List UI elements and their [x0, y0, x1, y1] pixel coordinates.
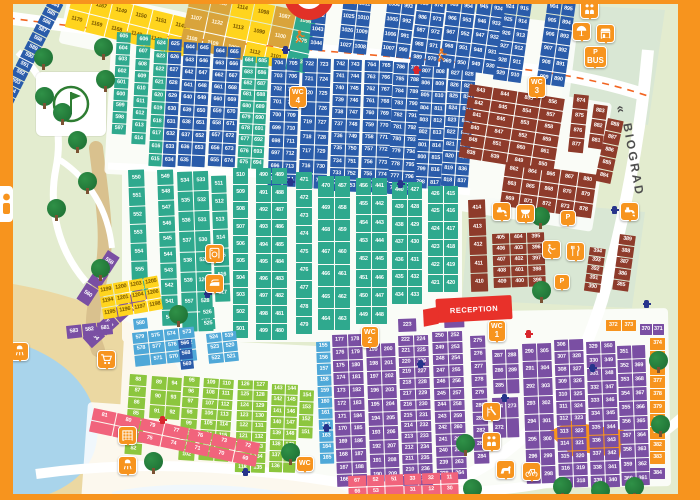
pitch-cell: 292 [523, 379, 538, 396]
pitch-cell: 444 [372, 233, 387, 250]
pitch-cell: 803 [417, 115, 431, 127]
pitch-cell: 665 [227, 47, 241, 59]
pitch-cell: 298 [541, 466, 556, 483]
pitch-cell: 138 [270, 440, 283, 451]
pitch-cell: 276 [470, 348, 485, 360]
pitch-cell: 620 [152, 90, 166, 103]
zone-orange-372: 372373 [606, 320, 636, 331]
pitch-cell: 403 [510, 244, 527, 255]
pitch-cell: 631 [164, 116, 178, 129]
dog-marker [496, 460, 515, 479]
pitch-cell: 784 [392, 86, 406, 98]
pitch-cell: 307 [554, 352, 568, 364]
pitch-cell: 351 [617, 346, 631, 360]
pitch-cell: 728 [314, 131, 328, 145]
pitch-cell: 815 [429, 153, 443, 165]
pitch-cell: 805 [418, 91, 432, 103]
pitch-cell: 742 [334, 59, 348, 71]
pitch-cell: 605 [116, 32, 131, 43]
pitch-cell: 227 [415, 367, 430, 377]
p-marker: P [560, 210, 576, 226]
pitch-cell: 66 [348, 487, 366, 498]
pitch-cell: 1009 [354, 26, 369, 41]
pitch-cell: 719 [300, 116, 314, 130]
pitch-cell: 311 [556, 402, 570, 414]
pitch-cell: 432 [408, 270, 423, 287]
pitch-cell: 699 [269, 122, 283, 134]
pitch-cell: 260 [451, 423, 466, 434]
pitch-cell: 1011 [357, 0, 372, 12]
pitch-cell: 286 [493, 365, 506, 379]
pitch-cell: 612 [133, 108, 148, 120]
pitch-cell: 972 [428, 26, 443, 40]
hydrant-icon [612, 206, 617, 214]
pitch-cell: 371 [653, 324, 665, 335]
pitch-cell: 479 [296, 317, 312, 334]
pitch-cell: 652 [193, 130, 207, 142]
pitch-cell: 1004 [386, 0, 401, 13]
zone-maroon-838: 8438448558568428458548578418468538588408… [458, 84, 564, 172]
pitch-cell: 870 [557, 185, 576, 201]
pitch-cell: 692 [252, 136, 265, 147]
pitch-cell: 661 [212, 82, 226, 94]
runner-icon [434, 48, 449, 63]
pitch-cell: 88 [129, 374, 147, 386]
pitch-cell: 1100 [268, 26, 292, 49]
pitch-cell: 765 [379, 61, 393, 73]
pitch-cell: 295 [525, 432, 540, 449]
pitch-cell: 319 [573, 463, 587, 475]
pitch-cell [385, 486, 403, 497]
pitch-cell: 129 [252, 401, 267, 411]
pitch-cell: 553 [130, 225, 147, 243]
pitch-cell: 435 [392, 270, 407, 287]
minigolf-icon [49, 82, 93, 126]
pitch-cell: 152 [299, 414, 313, 426]
pitch-cell: 402 [510, 255, 527, 266]
pitch-cell: 229 [415, 389, 430, 399]
pitch-cell: 601 [114, 78, 129, 89]
pitch-cell: 823 [445, 115, 459, 127]
pitch-cell: 356 [619, 416, 633, 430]
pitch-cell: 156 [316, 353, 330, 364]
pitch-cell: 31 [404, 485, 422, 496]
pitch-cell: 655 [208, 155, 222, 167]
pitch-cell: 1098 [251, 1, 275, 24]
pitch-cell: 175 [333, 360, 348, 372]
pitch-cell: 201 [381, 357, 395, 370]
runner-marker [290, 28, 309, 47]
pitch-cell: 474 [296, 226, 312, 243]
pitch-cell: 461 [335, 265, 351, 286]
pitch-cell: 650 [194, 105, 208, 117]
pitch-cell: 649 [195, 93, 209, 105]
pitch-cell: 554 [131, 243, 148, 261]
pitch-cell: 194 [368, 413, 382, 426]
pitch-cell: 240 [436, 446, 451, 457]
pitch-cell: 546 [159, 217, 176, 232]
pitch-cell [506, 418, 519, 438]
pitch-cell: 643 [183, 54, 197, 66]
pitch-cell: 321 [572, 438, 586, 450]
pitch-cell: 198 [366, 357, 380, 370]
climb-marker [542, 240, 561, 259]
pitch-cell: 778 [388, 159, 402, 171]
pitch-cell: 542 [161, 279, 178, 294]
pitch-cell: 647 [196, 68, 210, 80]
pitch-cell: 160 [318, 397, 332, 408]
pitch-cell: 254 [448, 354, 463, 365]
pitch-cell: 336 [589, 435, 603, 448]
pitch-cell: 623 [154, 51, 168, 64]
pitch-cell: 759 [363, 120, 377, 132]
pitch-cell: 418 [444, 240, 459, 257]
pitch-cell: 417 [444, 222, 459, 239]
pitch-cell: 112 [217, 400, 232, 410]
pitch-cell: 710 [284, 123, 298, 135]
family-icon [583, 3, 596, 16]
pitch-cell: 883 [592, 104, 608, 120]
pitch-cell: 322 [572, 426, 586, 438]
pitch-cell: 573 [179, 327, 195, 339]
pitch-cell: 186 [351, 436, 366, 448]
zone-teal-415: 426415425416424417423418422419421420 [428, 186, 458, 292]
pitch-cell: 987 [413, 25, 428, 39]
pitch-cell: 379 [650, 401, 665, 413]
pitch-cell: 523 [207, 343, 222, 354]
pitch-cell: 328 [569, 351, 583, 363]
pitch-cell: 114 [216, 420, 231, 430]
pitch-cell: 508 [233, 202, 248, 218]
pitch-cell: 430 [408, 235, 423, 252]
pitch-cell: 799 [414, 164, 428, 176]
pitch-cell: 380 [650, 414, 665, 426]
pitch-cell: 925 [500, 13, 515, 27]
pitch-cell: 411 [470, 255, 488, 273]
pitch-cell: 228 [415, 378, 430, 388]
pitch-cell: 378 [650, 389, 665, 401]
pitch-cell [507, 379, 520, 393]
pitch-cell: 525 [201, 318, 216, 329]
pitch-cell: 745 [347, 84, 361, 96]
pitch-cell: 96 [183, 387, 200, 398]
pitch-cell: 179 [348, 347, 363, 359]
pitch-cell: 1026 [340, 24, 355, 39]
marker-label: P [560, 278, 565, 286]
hydrant-icon [160, 416, 165, 424]
kiosk-icon [121, 429, 134, 442]
pitch-cell: 520 [222, 341, 237, 352]
pitch-cell: 786 [393, 62, 407, 74]
pitch-cell: 636 [178, 142, 192, 154]
pitch-cell: 404 [510, 233, 527, 244]
pitch-cell: 989 [410, 51, 425, 65]
pitch-cell: 239 [436, 457, 451, 468]
pitch-cell: 385 [612, 279, 629, 292]
pitch-cell: 126 [238, 380, 253, 390]
cart-icon [100, 353, 113, 366]
pitch-cell: 727 [315, 117, 329, 131]
pitch-cell: 583 [66, 324, 82, 338]
pitch-cell: 93 [166, 391, 181, 405]
pitch-cell: 398 [528, 265, 545, 276]
family-icon [485, 435, 498, 448]
pitch-cell: 967 [443, 26, 458, 41]
wc-marker: WC1 [488, 320, 506, 342]
pitch-cell: 577 [149, 341, 165, 353]
pitch-cell: 914 [515, 15, 530, 29]
pitch-cell: 678 [239, 124, 252, 135]
runner-icon [292, 30, 307, 45]
pitch-cell: 302 [539, 396, 554, 413]
frame-badge [0, 186, 13, 222]
pitch-cell: 232 [417, 421, 432, 431]
pitch-cell: 658 [210, 118, 224, 130]
pitch-cell: 107 [202, 399, 217, 409]
pitch-cell: 630 [165, 103, 179, 116]
pitch-cell: 537 [179, 232, 195, 252]
pitch-cell: 718 [300, 131, 314, 145]
kiosk-marker [118, 426, 137, 445]
campground-map: RECEPTION « BIOGRAD 58458558658758858959… [0, 0, 700, 500]
pitch-cell: 314 [557, 439, 571, 451]
pitch-cell: 86 [128, 397, 146, 409]
forkknife-marker [566, 242, 585, 261]
pitch-cell: 505 [233, 254, 248, 270]
pitch-cell: 111 [218, 389, 233, 399]
pitch-cell: 812 [431, 116, 445, 128]
pitch-cell: 865 [520, 179, 539, 195]
pitch-cell: 386 [614, 268, 631, 281]
shower-icon [13, 345, 26, 358]
tap-marker [620, 202, 639, 221]
pitch-cell: 220 [399, 357, 414, 367]
pitch-cell: 231 [416, 410, 431, 420]
pitch-cell: 608 [135, 59, 150, 71]
pitch-cell: 176 [332, 347, 347, 359]
hydrant-icon [590, 364, 595, 372]
reception-building: RECEPTION [435, 295, 512, 323]
pitch-cell: 877 [568, 138, 584, 153]
pitch-cell: 681 [241, 90, 254, 101]
pitch-cell: 954 [461, 0, 476, 15]
zone-purple-166: 1771781761791751801741811731821721831711… [332, 334, 367, 487]
pitch-cell: 377 [650, 376, 665, 388]
pitch-cell: 406 [492, 244, 509, 255]
pitch-cell: 382 [650, 440, 665, 452]
pitch-cell: 142 [271, 395, 284, 406]
pitch-cell: 646 [197, 55, 211, 67]
pitch-cell: 730 [313, 160, 327, 174]
p-marker: P [554, 274, 570, 290]
pitch-cell: 950 [454, 56, 469, 71]
pitch-cell: 700 [270, 110, 284, 122]
pitch-cell: 498 [256, 306, 271, 322]
pitch-cell: 278 [471, 374, 486, 386]
pitch-cell: 725 [316, 88, 330, 102]
pitch-cell: 946 [474, 14, 489, 29]
pitch-cell: 413 [469, 218, 487, 236]
pitch-cell: 600 [113, 89, 128, 100]
pitch-cell: 680 [240, 101, 253, 112]
pitch-cell: 985 [416, 0, 431, 12]
pitch-cell: 539 [181, 272, 197, 292]
pitch-cell: 908 [538, 56, 553, 71]
pitch-cell: 541 [161, 295, 178, 310]
pitch-cell: 738 [332, 107, 346, 119]
pitch-cell: 183 [350, 398, 365, 410]
marker-sublabel: BUS [587, 57, 604, 65]
pitch-cell: 617 [150, 128, 164, 141]
pitch-cell: 332 [587, 382, 601, 395]
marker-sublabel: 4 [296, 97, 300, 105]
pitch-cell: 275 [470, 335, 485, 347]
pitch-cell: 180 [348, 359, 363, 371]
pitch-cell: 193 [369, 427, 383, 440]
pitch-cell: 757 [362, 145, 376, 157]
pitch-cell: 653 [192, 143, 206, 155]
pitch-cell: 177 [332, 334, 347, 346]
pitch-cell: 312 [557, 414, 571, 426]
pitch-cell: 904 [546, 0, 561, 15]
pitch-cell: 163 [319, 431, 333, 442]
pitch-cell: 285 [493, 380, 506, 394]
pitch-cell: 458 [335, 198, 351, 219]
pitch-cell: 334 [588, 408, 602, 421]
pitch-cell: 549 [157, 169, 174, 184]
pitch-cell: 185 [351, 423, 366, 435]
pitch-cell: 947 [472, 29, 487, 44]
pitch-cell: 168 [336, 449, 351, 461]
pitch-cell: 800 [415, 152, 429, 164]
zone-pink-cluster: 6752513332116653311230 [348, 472, 459, 498]
pitch-cell: 802 [416, 127, 430, 139]
tap-icon [495, 205, 508, 218]
pitch-cell: 519 [221, 331, 236, 342]
zone-teal-427: 4404274394284384294374304364314354324344… [392, 182, 422, 304]
camper-icon [1, 190, 12, 218]
pitch-cell: 811 [431, 104, 445, 116]
cart-marker [97, 350, 116, 369]
pitch-cell: 308 [555, 364, 569, 376]
pitch-cell: 820 [442, 151, 456, 163]
pitch-cell: 128 [253, 391, 268, 401]
pitch-cell: 483 [272, 272, 287, 288]
pitch-cell: 667 [226, 71, 240, 83]
pitch-cell: 893 [557, 30, 572, 45]
pitch-cell: 223 [398, 318, 416, 332]
pitch-cell [134, 355, 150, 367]
pitch-cell: 513 [212, 212, 228, 230]
pitch-cell: 181 [349, 372, 364, 384]
pitch-cell: 224 [413, 335, 428, 345]
pitch-cell: 769 [377, 109, 391, 121]
hydrant-icon [526, 330, 531, 338]
pitch-cell: 154 [300, 390, 314, 402]
pitch-cell: 408 [493, 266, 510, 277]
pitch-cell: 141 [271, 406, 284, 417]
pitch-cell: 449 [356, 307, 371, 324]
pitch-cell: 684 [242, 56, 255, 67]
pitch-cell: 781 [390, 122, 404, 134]
marker-sublabel: 3 [535, 87, 539, 95]
pitch-cell: 736 [331, 131, 345, 143]
wc-marker: WC [296, 456, 314, 472]
pitch-cell: 381 [650, 427, 665, 439]
hydrant-icon [288, 178, 293, 186]
pitch-cell: 467 [318, 242, 334, 263]
tap-icon [623, 205, 636, 218]
pitch-cell: 339 [591, 475, 605, 488]
pitch-cell: 293 [524, 396, 539, 413]
pitch-cell: 365 [634, 415, 648, 429]
pitch-cell: 813 [430, 128, 444, 140]
pitch-cell: 924 [502, 0, 517, 14]
pitch-cell: 633 [163, 142, 177, 155]
pitch-cell: 211 [402, 454, 417, 464]
pitch-cell: 701 [270, 97, 284, 109]
pitch-cell: 750 [345, 144, 359, 156]
pitch-cell: 764 [365, 60, 379, 72]
pitch-cell: 469 [318, 198, 334, 219]
pitch-cell: 448 [372, 307, 387, 324]
pitch-cell: 137 [269, 451, 282, 462]
pitch-cell: 414 [468, 199, 486, 217]
pitch-cell: 534 [177, 171, 193, 191]
pitch-cell: 360 [621, 472, 635, 486]
pitch-cell: 367 [633, 387, 647, 401]
pitch-cell: 929 [493, 67, 508, 81]
pitch-cell: 67 [348, 475, 366, 486]
pitch-cell: 911 [509, 55, 524, 69]
pitch-cell: 689 [254, 102, 267, 113]
bbq-icon [519, 207, 532, 220]
pitch-cell: 470 [318, 176, 334, 197]
pitch-cell: 253 [448, 342, 463, 353]
pitch-cell: 106 [201, 409, 216, 419]
pitch-cell: 148 [284, 429, 297, 440]
pitch-cell: 974 [431, 0, 446, 14]
pitch-cell: 350 [601, 341, 615, 354]
market-icon [599, 27, 612, 40]
pitch-cell: 241 [436, 435, 451, 446]
pitch-cell: 361 [636, 472, 650, 486]
pitch-cell: 704 [272, 58, 286, 70]
pitch-cell: 726 [315, 102, 329, 116]
pitch-cell: 344 [604, 421, 618, 434]
pitch-cell: 864 [522, 165, 541, 181]
pitch-cell: 424 [428, 222, 443, 239]
pitch-cell: 613 [132, 120, 147, 132]
pitch-cell: 426 [428, 186, 443, 203]
pitch-cell: 664 [213, 46, 227, 58]
pitch-cell: 690 [253, 113, 266, 124]
pitch-cell: 139 [270, 428, 283, 439]
pitch-cell: 615 [148, 154, 162, 167]
pitch-cell: 491 [256, 185, 271, 201]
pitch-cell: 108 [203, 388, 218, 398]
pitch-cell: 347 [602, 381, 616, 394]
pitch-cell: 503 [233, 288, 248, 304]
pitch-cell: 579 [132, 331, 148, 343]
pitch-cell: 287 [492, 350, 505, 364]
pitch-cell: 364 [634, 430, 648, 444]
pitch-cell: 1205 [143, 276, 159, 289]
pitch-cell: 300 [540, 431, 555, 448]
pitch-cell: 423 [428, 240, 443, 257]
pitch-cell: 11 [440, 472, 458, 483]
pitch-cell: 892 [555, 44, 570, 59]
